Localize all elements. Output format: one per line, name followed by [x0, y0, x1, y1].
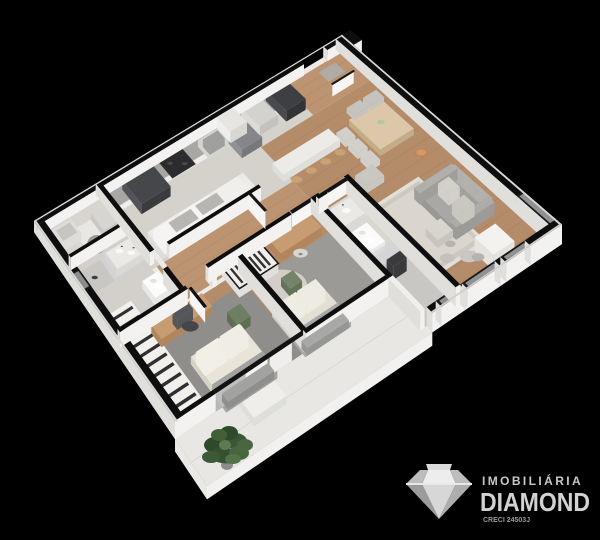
svg-text:CRECI 24503J: CRECI 24503J: [483, 517, 530, 524]
svg-text:IMOBILIÁRIA: IMOBILIÁRIA: [482, 473, 583, 488]
svg-text:DIAMOND: DIAMOND: [480, 487, 590, 517]
